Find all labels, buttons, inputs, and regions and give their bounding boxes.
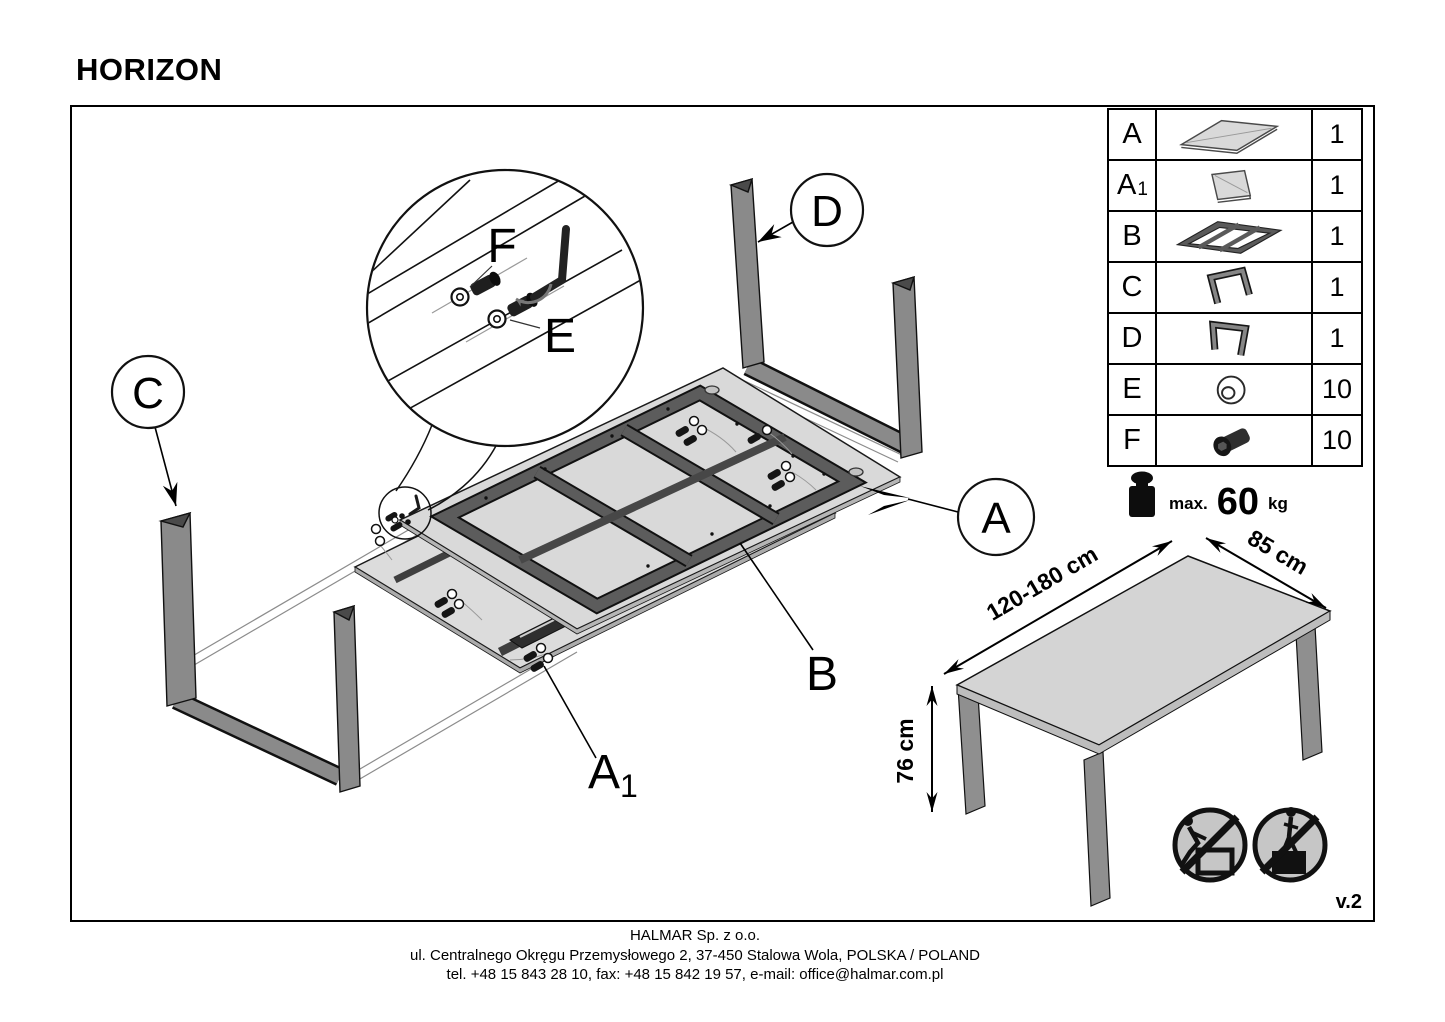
instruction-sheet: { "title": "HORIZON", "version_label": "…	[0, 0, 1445, 1022]
extension-panel-icon	[1157, 161, 1313, 210]
weight-icon	[1124, 470, 1160, 520]
parts-row-a: A 1	[1109, 110, 1361, 161]
leg-c	[161, 513, 360, 792]
callout-a1-label: A1	[588, 746, 638, 804]
parts-row-c: C 1	[1109, 263, 1361, 314]
weight-limit-unit: kg	[1268, 494, 1288, 520]
page-title: HORIZON	[76, 52, 222, 88]
callout-e-label: E	[544, 310, 576, 363]
no-climbing-sign-1	[1175, 810, 1245, 880]
footer-address: ul. Centralnego Okręgu Przemysłowego 2, …	[0, 946, 1390, 966]
weight-limit: max. 60 kg	[1124, 470, 1288, 520]
part-qty: 10	[1313, 416, 1361, 465]
dim-depth-label: 85 cm	[1243, 524, 1312, 579]
no-standing-sign-2	[1255, 807, 1325, 880]
part-qty: 1	[1313, 212, 1361, 261]
parts-row-b: B 1	[1109, 212, 1361, 263]
part-id: C	[1109, 263, 1157, 312]
callout-f-label: F	[487, 220, 516, 273]
parts-row-a1: A1 1	[1109, 161, 1361, 212]
bolt-icon	[1157, 416, 1313, 465]
version-label: v.2	[1270, 891, 1362, 914]
weight-limit-value: 60	[1217, 484, 1259, 520]
parts-table: A 1 A1 1 B 1	[1107, 108, 1363, 467]
tabletop-panel-icon	[1157, 110, 1313, 159]
footer-company: HALMAR Sp. z o.o.	[0, 926, 1390, 946]
magnifier-circle	[367, 170, 643, 446]
parts-row-e: E 10	[1109, 365, 1361, 416]
washer-icon	[1157, 365, 1313, 414]
part-qty: 1	[1313, 263, 1361, 312]
part-id: E	[1109, 365, 1157, 414]
footer: HALMAR Sp. z o.o. ul. Centralnego Okręgu…	[0, 926, 1390, 985]
footer-contacts: tel. +48 15 843 28 10, fax: +48 15 842 1…	[0, 965, 1390, 985]
parts-row-d: D 1	[1109, 314, 1361, 365]
part-id: D	[1109, 314, 1157, 363]
u-shaped-leg-icon	[1157, 314, 1313, 363]
callout-a-label: A	[981, 494, 1011, 543]
weight-limit-prefix: max.	[1169, 494, 1208, 520]
part-qty: 1	[1313, 110, 1361, 159]
u-shaped-leg-icon	[1157, 263, 1313, 312]
part-qty: 1	[1313, 314, 1361, 363]
part-id: A1	[1109, 161, 1157, 210]
callout-d-label: D	[811, 187, 843, 236]
dim-height-label: 76 cm	[892, 718, 918, 783]
support-frame-icon	[1157, 212, 1313, 261]
part-id: B	[1109, 212, 1157, 261]
part-qty: 10	[1313, 365, 1361, 414]
callout-b-label: B	[806, 648, 838, 701]
part-id: A	[1109, 110, 1157, 159]
parts-row-f: F 10	[1109, 416, 1361, 465]
callout-c-label: C	[132, 369, 164, 418]
part-qty: 1	[1313, 161, 1361, 210]
part-id: F	[1109, 416, 1157, 465]
